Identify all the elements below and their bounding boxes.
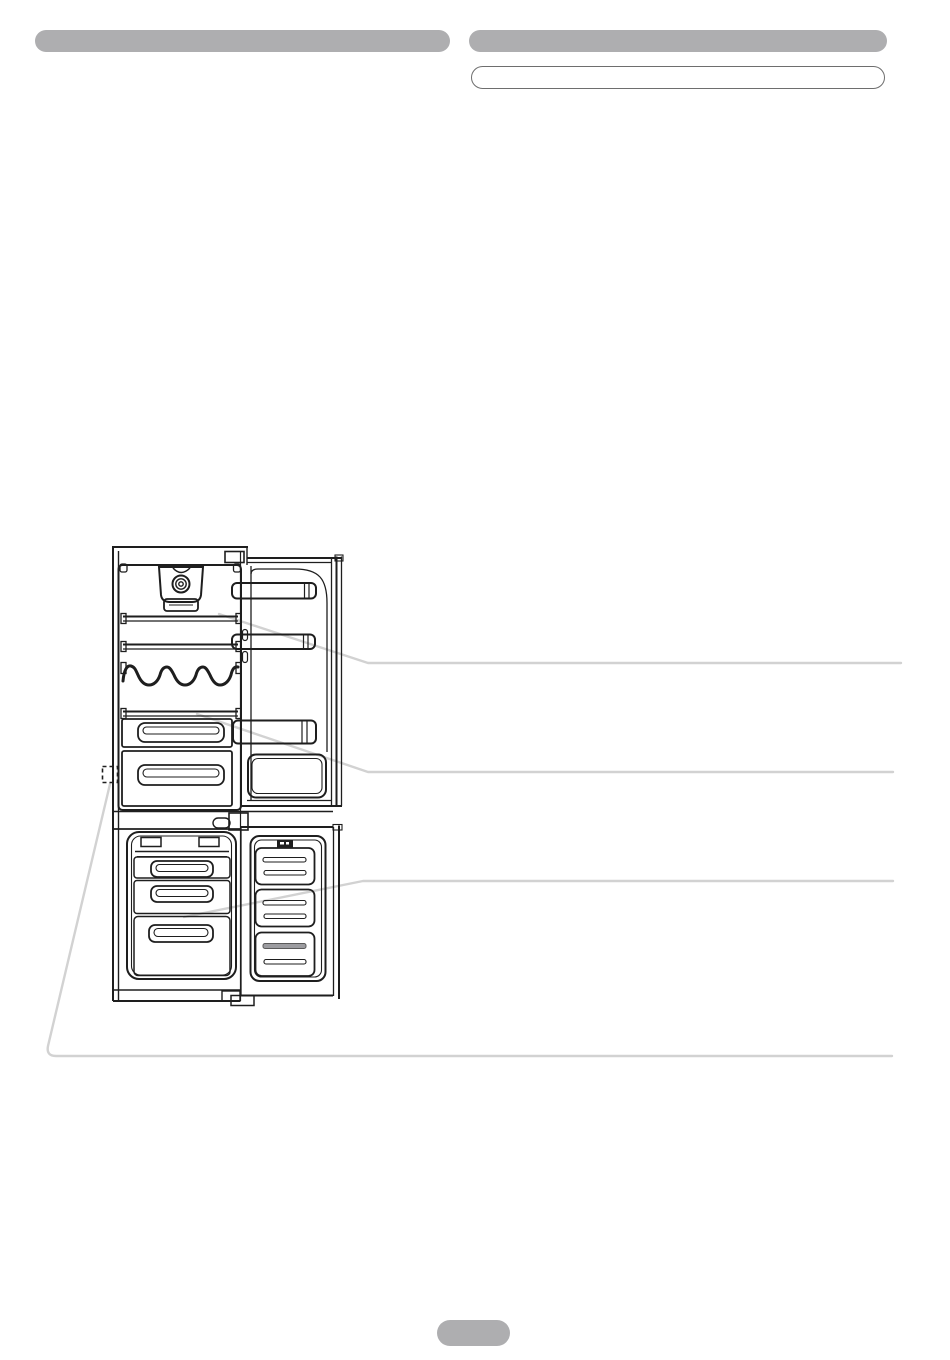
bottle-rack [121,663,241,686]
fridge-freezer-line-art [103,547,344,1006]
crisper-drawers [122,719,232,806]
freezer-door-badge [277,840,293,848]
fridge-door [232,555,343,806]
fridge-freezer-diagram [0,0,950,1360]
page-number-badge [437,1320,510,1346]
fridge-interior [119,564,242,810]
callout-line-freezer-drawer [184,881,893,917]
door-balconies [232,583,326,798]
freezer-door [231,825,342,1006]
freezer-compartment [127,832,236,979]
freezer-door-shelves [256,848,315,976]
freezer-drawers [134,857,230,976]
interior-lamp [159,567,203,611]
rating-plate-marker [103,767,118,783]
callout-line-rating-plate [48,784,892,1056]
manual-page [0,0,950,1360]
callout-line-shelf [219,614,901,663]
fridge-shelves [121,614,241,719]
